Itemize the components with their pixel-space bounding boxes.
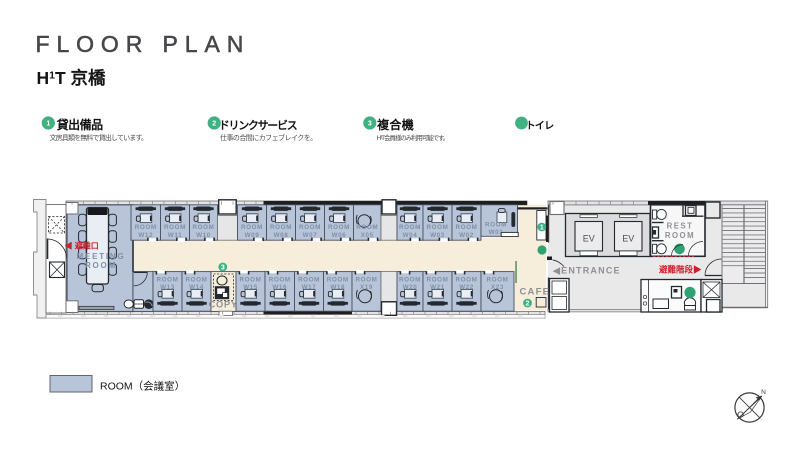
svg-text:ROOM: ROOM	[85, 261, 117, 270]
svg-text:ROOM: ROOM	[186, 277, 208, 284]
svg-text:N: N	[761, 389, 766, 396]
svg-text:ROOM: ROOM	[399, 224, 421, 231]
svg-text:ROOM: ROOM	[487, 277, 509, 284]
svg-text:ROOM: ROOM	[427, 277, 449, 284]
svg-text:ROOM: ROOM	[193, 224, 215, 231]
svg-text:ROOM: ROOM	[240, 277, 262, 284]
svg-text:ROOM: ROOM	[399, 277, 421, 284]
svg-text:1: 1	[46, 121, 50, 128]
svg-text:◀ 避難口: ◀ 避難口	[65, 241, 99, 251]
svg-text:ROOM: ROOM	[164, 224, 186, 231]
svg-text:H1T 京橋: H1T 京橋	[37, 68, 107, 88]
svg-text:ROOM: ROOM	[456, 224, 478, 231]
svg-text:EV: EV	[622, 234, 634, 244]
svg-text:複合機: 複合機	[376, 117, 414, 132]
svg-text:W08: W08	[274, 232, 289, 239]
svg-text:ROOM: ROOM	[135, 224, 157, 231]
svg-text:W10: W10	[196, 232, 211, 239]
svg-text:W11: W11	[168, 232, 182, 239]
svg-text:ROOM: ROOM	[356, 224, 378, 231]
svg-text:ROOM（会議室）: ROOM（会議室）	[100, 380, 185, 393]
svg-text:W02: W02	[459, 232, 474, 239]
svg-text:W03: W03	[430, 232, 445, 239]
svg-text:ROOM: ROOM	[269, 277, 291, 284]
svg-text:◀ENTRANCE: ◀ENTRANCE	[552, 266, 621, 276]
svg-text:ROOM: ROOM	[327, 277, 349, 284]
svg-text:REST: REST	[667, 222, 694, 231]
svg-text:FLOOR PLAN: FLOOR PLAN	[36, 31, 251, 57]
svg-text:ROOM: ROOM	[270, 224, 292, 231]
svg-text:X05: X05	[361, 232, 374, 239]
svg-text:ROOM: ROOM	[356, 277, 378, 284]
svg-text:EV: EV	[583, 234, 595, 244]
svg-text:W07: W07	[303, 232, 318, 239]
svg-text:MEETING: MEETING	[76, 252, 125, 261]
svg-text:COPY: COPY	[209, 300, 238, 310]
svg-text:1: 1	[540, 225, 544, 232]
svg-text:3: 3	[221, 265, 225, 272]
svg-text:W12: W12	[138, 232, 153, 239]
svg-text:ROOM: ROOM	[485, 221, 507, 228]
svg-text:仕事の合間にカフェブレイクを。: 仕事の合間にカフェブレイクを。	[220, 133, 317, 142]
svg-text:ROOM: ROOM	[665, 231, 695, 240]
svg-text:ROOM: ROOM	[427, 224, 449, 231]
svg-text:トイレ: トイレ	[526, 120, 555, 132]
svg-text:ドリンクサービス: ドリンクサービス	[219, 118, 298, 132]
svg-text:CAFE: CAFE	[520, 287, 551, 298]
svg-text:ROOM: ROOM	[328, 224, 350, 231]
svg-text:ROOM: ROOM	[241, 224, 263, 231]
svg-text:3: 3	[368, 121, 372, 128]
svg-text:ROOM: ROOM	[157, 277, 179, 284]
svg-text:避難階段▶: 避難階段▶	[659, 265, 702, 275]
svg-text:ROOM: ROOM	[299, 224, 321, 231]
svg-text:2: 2	[526, 301, 530, 308]
svg-text:H¹T会員様のみ利用可能です。: H¹T会員様のみ利用可能です。	[377, 133, 449, 142]
svg-text:文房具類を無料で貸出しています。: 文房具類を無料で貸出しています。	[50, 133, 148, 142]
svg-text:ROOM: ROOM	[298, 277, 320, 284]
svg-text:2: 2	[212, 121, 216, 128]
svg-text:ROOM: ROOM	[456, 277, 478, 284]
svg-text:W09: W09	[245, 232, 260, 239]
svg-text:W06: W06	[332, 232, 347, 239]
svg-text:貸出備品: 貸出備品	[57, 117, 104, 132]
